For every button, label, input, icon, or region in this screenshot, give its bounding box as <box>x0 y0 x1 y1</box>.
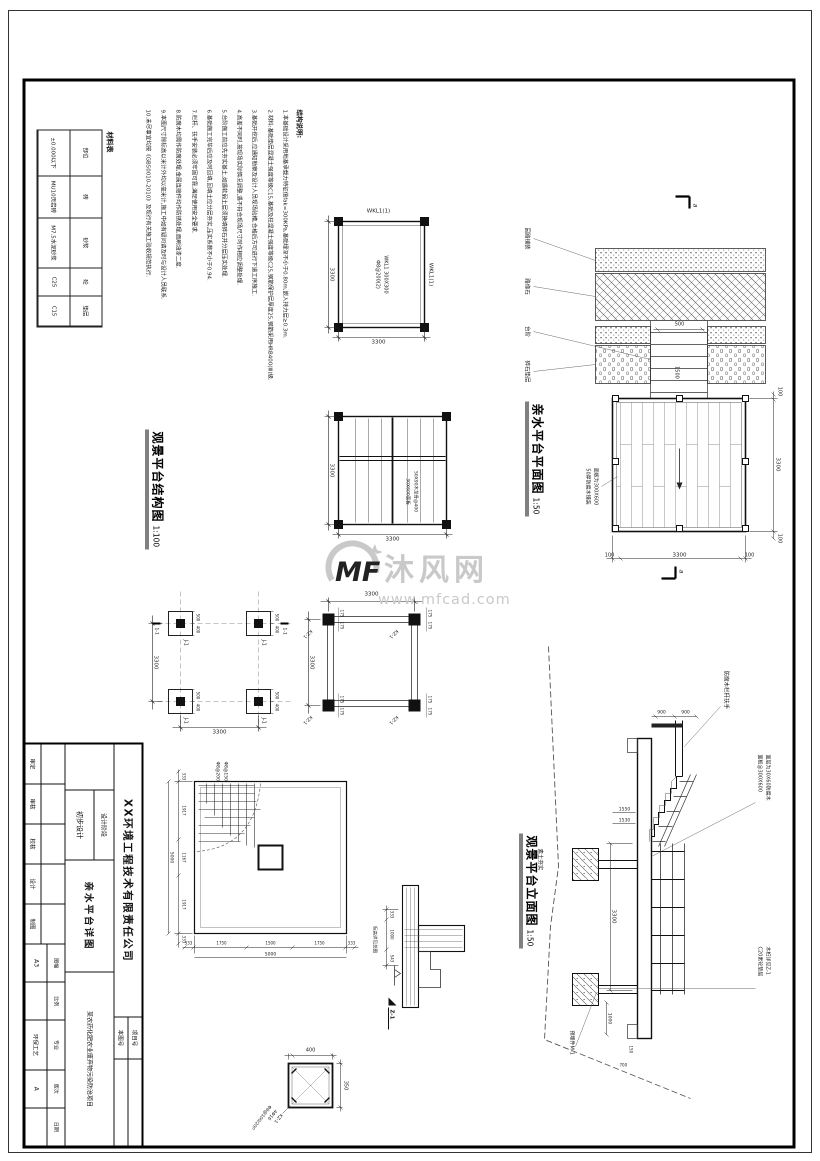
elevation-title: 观景平台立面图1:50 <box>520 834 541 949</box>
mtab-cell: ±0.000以下 <box>38 131 70 177</box>
svg-text:园路铺装: 园路铺装 <box>524 227 532 250</box>
dim: 3300 <box>213 730 227 736</box>
svg-text:175: 175 <box>340 708 345 716</box>
beam-note: Φ8@200(2) <box>375 260 381 289</box>
footing-section-detail: 333 1000 543 Z-1 标高详见总图 <box>370 870 475 1040</box>
svg-text:500: 500 <box>275 692 280 700</box>
pavement-labels: 园路铺装 路缘石 台阶 碎石垫层 <box>524 227 532 383</box>
sign-value <box>41 905 65 944</box>
structure-plan-title: 观景平台结构图1:100 <box>146 430 167 550</box>
column-section-kz1: 350 400 KZ-1 4Φ16 Φ8@100/200 <box>253 1030 361 1148</box>
note-line: 7.栏杆、扶手安装必须牢固可靠,满足使用安全要求. <box>185 110 200 412</box>
dim: 100 <box>605 553 615 559</box>
section-note: 标高详见总图 <box>372 926 379 953</box>
steps <box>651 321 708 399</box>
material-table: 部位 砖 砂浆 砼 垫层 ±0.000以下 MU10页岩砖 M7.5水泥砂浆 C… <box>37 130 103 328</box>
mtab-header: 部位 <box>70 131 102 177</box>
svg-text:500: 500 <box>196 614 201 622</box>
rebar-grid <box>199 784 261 848</box>
beam-frame-plan: WKL1(1) WKL1(1) WKL1 300X300 Φ8@200(2) 3… <box>313 194 441 354</box>
dim: 100 <box>777 534 783 544</box>
mtab-cell: MU10页岩砖 <box>38 177 70 219</box>
pavement-bands <box>596 249 766 384</box>
meta-value: A3 <box>26 945 47 982</box>
column-labels: KZ-1 KZ-1 KZ-1 KZ-1 <box>302 628 400 726</box>
dim: 1530 <box>619 818 631 824</box>
material-table-title: 材料表 <box>105 132 115 153</box>
drawing-title: 亲水平台详图 <box>65 861 114 973</box>
note-line: 2.材料:基础垫层混凝土强度等级C15,基础及柱混凝土强度等级C25,钢筋保护层… <box>261 110 276 412</box>
dim: 3300 <box>673 553 687 559</box>
title-text: 观景平台结构图 <box>151 432 165 523</box>
sheet-no-label: 本图号 <box>115 1018 128 1060</box>
svg-text:1917: 1917 <box>182 805 187 816</box>
meta-label: 版次 <box>47 1070 65 1107</box>
meta-value: 环保工艺 <box>26 1021 47 1069</box>
bottom-dims: 333 1917 1167 1917 333 <box>182 773 187 944</box>
mfcad-logo-icon: MF <box>322 538 384 596</box>
beam-label: WKL1(1) <box>367 209 390 215</box>
svg-text:175: 175 <box>340 622 345 630</box>
svg-text:1750: 1750 <box>314 941 325 946</box>
note-line: 10.未尽事宜均按《GB50010-2010》及现行有关施工验收规范执行. <box>139 110 154 412</box>
meta-label: 专业 <box>47 1021 65 1069</box>
notes-title: 结构说明: <box>291 110 306 412</box>
dim: 1550 <box>619 807 631 813</box>
mtab-header: 垫层 <box>70 297 102 327</box>
dim: 900 <box>681 710 690 716</box>
svg-text:333: 333 <box>182 773 187 781</box>
svg-text:500: 500 <box>196 692 201 700</box>
sign-value <box>41 865 65 904</box>
svg-text:175: 175 <box>428 696 433 704</box>
svg-text:400: 400 <box>196 704 201 712</box>
note-line: 4.高差不同时,按现场实际情况调整,遇不符合现场尺寸时作相应调整处理. <box>230 110 245 412</box>
svg-text:1500: 1500 <box>265 941 276 946</box>
svg-text:175: 175 <box>340 610 345 618</box>
note-line: 8.防腐木均需作防腐处理,金属连接件均作防锈处理,面刷油漆二度. <box>170 110 185 412</box>
water-platform-plan: 500 1500 100 3300 100 100 <box>503 187 788 587</box>
dim: 3300 <box>611 910 617 924</box>
footing-dims: 500400 500400 500400 500400 <box>196 614 280 712</box>
sheet-number-cells: 项目号 本图号 <box>114 1018 142 1146</box>
footing-label: J-1 <box>183 717 189 724</box>
rebar-note: Φ8@150 <box>223 762 229 782</box>
right-dims: 333 1750 1500 1750 333 <box>185 941 356 946</box>
dim: 1500 <box>674 366 680 379</box>
meta-label: 图幅 <box>47 945 65 982</box>
meta-value: A <box>26 1070 47 1107</box>
svg-text:KZ-1: KZ-1 <box>388 628 400 640</box>
title-text: 亲水平台平面图 <box>531 404 545 495</box>
footing-label: J-1 <box>261 639 267 646</box>
section-letter: a <box>692 204 700 208</box>
svg-text:400: 400 <box>275 626 280 634</box>
elev-note: 面层为30X60防腐木 <box>765 755 772 801</box>
section-mark: 1-1 <box>282 628 288 635</box>
svg-text:台阶: 台阶 <box>524 326 532 338</box>
drawing-sheet: 结构说明: 1.本基础设计采用地基承载力特征值fak=300KPa,基础埋深不小… <box>23 79 796 1149</box>
dim: 150 <box>629 1046 634 1054</box>
svg-text:333: 333 <box>185 941 193 946</box>
mtab-cell: C25 <box>38 269 70 297</box>
framing-note: 50X90木龙骨@400 <box>413 471 420 512</box>
mtab-header: 砂浆 <box>70 219 102 269</box>
dim: 1000 <box>607 1013 613 1025</box>
footing-label: J-1 <box>261 717 267 724</box>
dim: 3300 <box>309 656 315 670</box>
deck-note: 面板为300X600 <box>593 468 600 506</box>
dim: 350 <box>343 1081 349 1091</box>
title-scale: 1:50 <box>526 930 535 947</box>
section-letter: a <box>678 570 686 574</box>
svg-text:543: 543 <box>390 955 395 963</box>
watermark-brand: 沐风网 <box>384 545 489 589</box>
sign-cells: 审定 审核 校核 设计 制图 <box>26 745 65 945</box>
note-line: 6.基础施工完毕后应及时回填,回填土应分层夯实,压实系数不小于0.94. <box>200 110 215 412</box>
svg-text:KZ-1: KZ-1 <box>302 714 314 726</box>
sign-value <box>41 825 65 864</box>
svg-text:1750: 1750 <box>216 941 227 946</box>
footing-label: J-1 <box>183 639 189 646</box>
elev-note: 预埋件M-1 <box>569 1031 576 1055</box>
svg-text:400: 400 <box>196 626 201 634</box>
water-plan-title: 亲水平台平面图1:50 <box>526 402 547 517</box>
dim: 400 <box>306 1048 316 1054</box>
svg-text:175: 175 <box>428 622 433 630</box>
svg-text:碎石垫层: 碎石垫层 <box>524 360 532 383</box>
structural-notes: 结构说明: 1.本基础设计采用地基承载力特征值fak=300KPa,基础埋深不小… <box>137 110 307 412</box>
project-no-label: 项目号 <box>129 1018 142 1060</box>
meta-label: 比例 <box>47 983 65 1020</box>
svg-text:1167: 1167 <box>182 852 187 863</box>
project-name: 某农药化肥农业废弃物污染防治项目 <box>65 973 114 1146</box>
elev-note: C20素砼垫层 <box>757 947 764 977</box>
sign-value <box>41 745 65 784</box>
meta-label: 日期 <box>47 1108 65 1145</box>
dim: 700 <box>620 1063 628 1068</box>
mtab-cell: C15 <box>38 297 70 327</box>
dim-total: 5000 <box>265 952 277 958</box>
stage-value: 初步设计 <box>65 791 94 860</box>
detail-marker: Z-1 <box>389 1010 395 1020</box>
stage-label: 设计阶段 <box>94 791 114 860</box>
meta-value <box>26 1108 47 1145</box>
svg-text:500: 500 <box>275 614 280 622</box>
sign-value <box>41 785 65 824</box>
sheet-no-value <box>115 1060 128 1146</box>
note-line: 5.台阶施工前应先夯实基土,如遇软弱土层须换填碎石并分层压实处理. <box>215 110 230 412</box>
elev-note: 防腐木栏杆扶手 <box>723 671 731 710</box>
note-line: 9.本图尺寸除标高以米计外均以毫米计,施工中如有疑问请及时与设计人员联系. <box>154 110 169 412</box>
elev-note: 木桩详见Z-1 <box>765 947 772 975</box>
title-scale: 1:50 <box>532 498 541 515</box>
beam-label: WKL1(1) <box>428 263 434 286</box>
svg-text:175: 175 <box>340 696 345 704</box>
mtab-cell: M7.5水泥砂浆 <box>38 219 70 269</box>
dim: 3300 <box>153 656 159 670</box>
svg-text:1000: 1000 <box>390 929 395 940</box>
title-text: 观景平台立面图 <box>525 836 539 927</box>
mtab-header: 砼 <box>70 269 102 297</box>
project-no-value <box>129 1060 142 1146</box>
framing-note: 30X600面板 <box>405 478 412 505</box>
dim: 500 <box>675 322 685 328</box>
svg-text:333: 333 <box>348 941 356 946</box>
sign-label: 校核 <box>26 825 41 864</box>
company-name: XX环境工程技术有限责任公司 <box>114 745 142 1018</box>
svg-text:400: 400 <box>275 704 280 712</box>
title-block: XX环境工程技术有限责任公司 项目号 本图号 设计阶段 初步设计 亲水平台详图 … <box>26 743 144 1146</box>
logo-text: MF <box>335 557 381 588</box>
svg-text:1917: 1917 <box>182 899 187 910</box>
sign-label: 审定 <box>26 745 41 784</box>
svg-text:175: 175 <box>428 708 433 716</box>
svg-text:KZ-1: KZ-1 <box>388 714 400 726</box>
footing-layout-plan: J-1 J-1 J-1 J-1 500400 500400 500400 500… <box>142 574 307 739</box>
mtab-header: 砖 <box>70 177 102 219</box>
dim: 3300 <box>775 458 781 472</box>
sign-label: 设计 <box>26 865 41 904</box>
title-scale: 1:100 <box>152 526 161 548</box>
svg-text:路缘石: 路缘石 <box>524 278 532 295</box>
meta-cells: 图幅A3 比例 专业环保工艺 版次A 日期 <box>26 945 65 1146</box>
joist-lines <box>356 419 434 523</box>
footing-detail-j1: Φ8@150 Φ8@200 333 1917 1167 1917 333 500… <box>160 760 375 965</box>
dim: 900 <box>657 710 666 716</box>
svg-text:KZ-1: KZ-1 <box>302 628 314 640</box>
elev-note: 面板@300X600 <box>757 755 764 793</box>
deck-framing-plan: 50X90木龙骨@400 30X600面板 3300 3300 <box>315 397 465 547</box>
section-mark: 1-1 <box>154 628 160 635</box>
rebar-note: Φ8@200 <box>215 762 221 782</box>
note-line: 3.基础开挖后,应通知勘察及设计人员现场验槽,合格后方可进行下道工序施工. <box>246 110 261 412</box>
svg-text:175: 175 <box>428 610 433 618</box>
dim-total: 5000 <box>169 852 175 864</box>
deck-note: 50厚防腐木铺装 <box>585 468 592 504</box>
blank-cell <box>65 745 114 791</box>
sign-label: 制图 <box>26 905 41 944</box>
svg-text:333: 333 <box>390 911 395 919</box>
note-line: 1.本基础设计采用地基承载力特征值fak=300KPa,基础埋深不小于0.80m… <box>276 110 291 412</box>
watermark: MF 沐风网 www.mfcad.com <box>322 538 512 608</box>
dim: 3300 <box>372 340 386 346</box>
stage-cell: 设计阶段 初步设计 <box>65 791 114 861</box>
section-dims: 333 1000 543 <box>390 911 395 963</box>
dim: 3300 <box>329 268 335 282</box>
dim: 100 <box>745 553 755 559</box>
meta-value <box>26 983 47 1020</box>
dim: 3300 <box>329 464 335 478</box>
beam-note: WKL1 300X300 <box>383 255 389 293</box>
sign-label: 审核 <box>26 785 41 824</box>
dim: 100 <box>777 387 783 397</box>
column-section-label: KZ-1 4Φ16 Φ8@100/200 <box>253 1104 284 1140</box>
cad-viewer-page: 结构说明: 1.本基础设计采用地基承载力特征值fak=300KPa,基础埋深不小… <box>0 0 820 1161</box>
